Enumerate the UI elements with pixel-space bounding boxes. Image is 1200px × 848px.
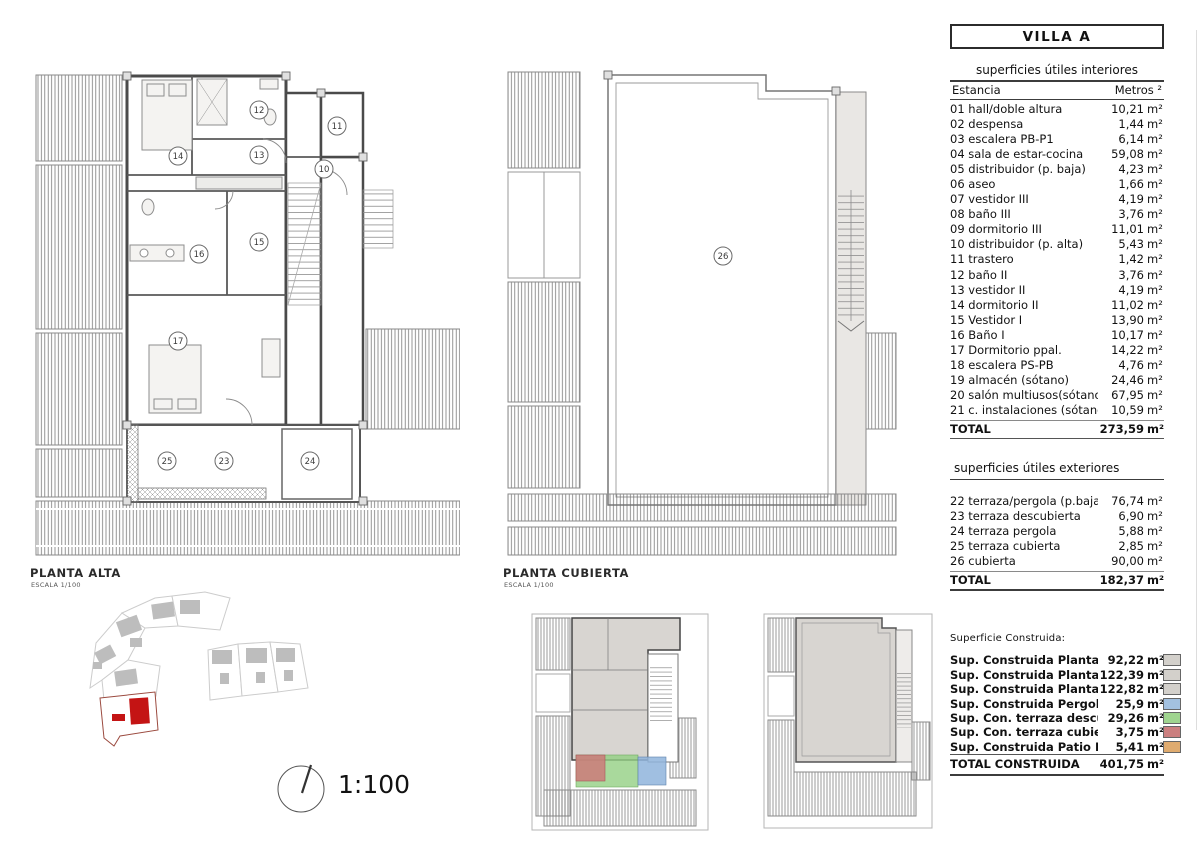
legend-row: Sup. Con. terraza cubierta3,75m² <box>950 725 1164 739</box>
interior-table: superficies útiles interiores Estancia M… <box>950 63 1164 439</box>
legend-swatch <box>1163 669 1181 681</box>
table-row: 17 Dormitorio ppal.14,22m² <box>950 343 1164 358</box>
table-row: 08 baño III3,76m² <box>950 207 1164 222</box>
legend-row: Sup. Construida Planta Alta92,22m² <box>950 653 1164 667</box>
col-area-header: Metros ² <box>1115 83 1162 97</box>
page-edge-line <box>1196 30 1197 730</box>
legend-row: Sup. Con. terraza descubierta29,26m² <box>950 711 1164 725</box>
room-marker: 26 <box>714 247 732 265</box>
room-marker: 11 <box>328 117 346 135</box>
villa-title-box: VILLA A <box>950 24 1164 49</box>
scale-ratio-label: 1:100 <box>338 770 410 799</box>
keyplan-cubierta <box>760 610 940 835</box>
stair <box>897 672 911 728</box>
table-row: 23 terraza descubierta6,90m² <box>950 509 1164 524</box>
construida-title: Superficie Construida: <box>950 633 1164 644</box>
keyplan-planta-baja <box>528 610 713 835</box>
legend-swatch <box>1163 683 1181 695</box>
interior-table-header: Estancia Metros ² <box>950 80 1164 100</box>
room-marker: 12 <box>250 101 268 119</box>
overlay-blue <box>638 757 666 785</box>
table-row: 05 distribuidor (p. baja)4,23m² <box>950 162 1164 177</box>
col-room-header: Estancia <box>952 83 1001 97</box>
svg-text:16: 16 <box>194 250 205 260</box>
pergola-louvers-right <box>866 333 896 429</box>
area-overlays <box>576 755 666 787</box>
legend-row: Sup. Construida Patio Inglés5,41m² <box>950 740 1164 755</box>
site-plan <box>60 588 310 758</box>
plan-cubierta-title: PLANTA CUBIERTA <box>503 566 629 580</box>
table-row: 21 c. instalaciones (sótano)10,59m² <box>950 403 1164 418</box>
table-row: 13 vestidor II4,19m² <box>950 283 1164 298</box>
legend-swatch <box>1163 698 1181 710</box>
table-row: 16 Baño I10,17m² <box>950 328 1164 343</box>
pergola-louvers-right <box>366 329 460 429</box>
room-marker: 16 <box>190 245 208 263</box>
room-marker: 15 <box>250 233 268 251</box>
roof-footprint <box>796 618 896 762</box>
plan-planta-alta: 14 12 11 13 10 15 16 17 25 23 24 <box>30 57 460 562</box>
svg-text:11: 11 <box>332 122 343 132</box>
exterior-total-row: TOTAL 182,37 m² <box>950 571 1164 591</box>
table-row: 18 escalera PS-PB4,76m² <box>950 358 1164 373</box>
room-marker: 14 <box>169 147 187 165</box>
overlay-red <box>576 755 605 781</box>
table-row: 04 sala de estar-cocina59,08m² <box>950 147 1164 162</box>
table-row: 11 trastero1,42m² <box>950 252 1164 267</box>
room-marker: 23 <box>215 452 233 470</box>
table-row: 22 terraza/pergola (p.baja)76,74m² <box>950 494 1164 509</box>
data-panel: VILLA A superficies útiles interiores Es… <box>950 24 1164 776</box>
table-row: 09 dormitorio III11,01m² <box>950 222 1164 237</box>
svg-text:17: 17 <box>173 337 184 347</box>
room-marker: 17 <box>169 332 187 350</box>
roof-access-strip <box>836 92 866 505</box>
svg-text:23: 23 <box>219 457 230 467</box>
legend-swatch <box>1163 712 1181 724</box>
room-marker: 13 <box>250 146 268 164</box>
stair <box>650 666 672 724</box>
plan-cubierta-scale: ESCALA 1/100 <box>504 581 554 589</box>
construida-total-row: TOTAL CONSTRUIDA 401,75 m² <box>950 755 1164 776</box>
legend-row: Sup. Construida Pergolas25,9m² <box>950 697 1164 711</box>
svg-text:26: 26 <box>718 252 729 262</box>
pergola-louvers-bottom <box>508 494 896 555</box>
legend-swatch <box>1163 741 1181 753</box>
svg-text:12: 12 <box>254 106 265 116</box>
pergola-louvers-left <box>508 72 580 488</box>
legend-swatch <box>1163 654 1181 666</box>
room-marker: 25 <box>158 452 176 470</box>
sink-icon <box>260 79 278 89</box>
toilet-icon <box>142 199 154 215</box>
table-row: 03 escalera PB-P16,14m² <box>950 132 1164 147</box>
villa-title: VILLA A <box>1023 29 1092 45</box>
table-row: 02 despensa1,44m² <box>950 117 1164 132</box>
table-row: 15 Vestidor I13,90m² <box>950 313 1164 328</box>
roof-outline <box>608 75 836 505</box>
table-row: 14 dormitorio II11,02m² <box>950 298 1164 313</box>
exterior-table-title: superficies útiles exteriores <box>950 461 1164 480</box>
exterior-table: superficies útiles exteriores 22 terraza… <box>950 461 1164 591</box>
table-row: 10 distribuidor (p. alta)5,43m² <box>950 237 1164 252</box>
table-row: 01 hall/doble altura10,21m² <box>950 102 1164 117</box>
table-row: 06 aseo1,66m² <box>950 177 1164 192</box>
svg-text:25: 25 <box>162 457 173 467</box>
svg-text:13: 13 <box>254 151 265 161</box>
plan-planta-cubierta: 26 <box>500 57 920 562</box>
legend-swatch <box>1163 726 1181 738</box>
table-row: 07 vestidor III4,19m² <box>950 192 1164 207</box>
svg-text:24: 24 <box>305 457 316 467</box>
legend-row: Sup. Construida Planta Sótano122,82m² <box>950 682 1164 696</box>
svg-text:10: 10 <box>319 165 330 175</box>
room-marker: 24 <box>301 452 319 470</box>
table-row: 24 terraza pergola5,88m² <box>950 524 1164 539</box>
pergola-louvers-left <box>36 75 122 497</box>
table-row: 12 baño II3,76m² <box>950 268 1164 283</box>
table-row: 20 salón multiusos(sótano)67,95m² <box>950 388 1164 403</box>
interior-total-row: TOTAL 273,59 m² <box>950 420 1164 439</box>
double-sink-icon <box>130 245 184 261</box>
table-row: 19 almacén (sótano)24,46m² <box>950 373 1164 388</box>
table-row: 25 terraza cubierta2,85m² <box>950 539 1164 554</box>
svg-text:14: 14 <box>173 152 184 162</box>
legend-row: Sup. Construida Planta Baja122,39m² <box>950 668 1164 682</box>
closet-icon <box>196 177 282 189</box>
desk-icon <box>262 339 280 377</box>
table-row: 26 cubierta90,00m² <box>950 554 1164 569</box>
plan-alta-title: PLANTA ALTA <box>30 566 121 580</box>
room-marker: 10 <box>315 160 333 178</box>
interior-table-title: superficies útiles interiores <box>950 63 1164 77</box>
svg-text:15: 15 <box>254 238 265 248</box>
construida-table: Superficie Construida: Sup. Construida P… <box>950 633 1164 776</box>
